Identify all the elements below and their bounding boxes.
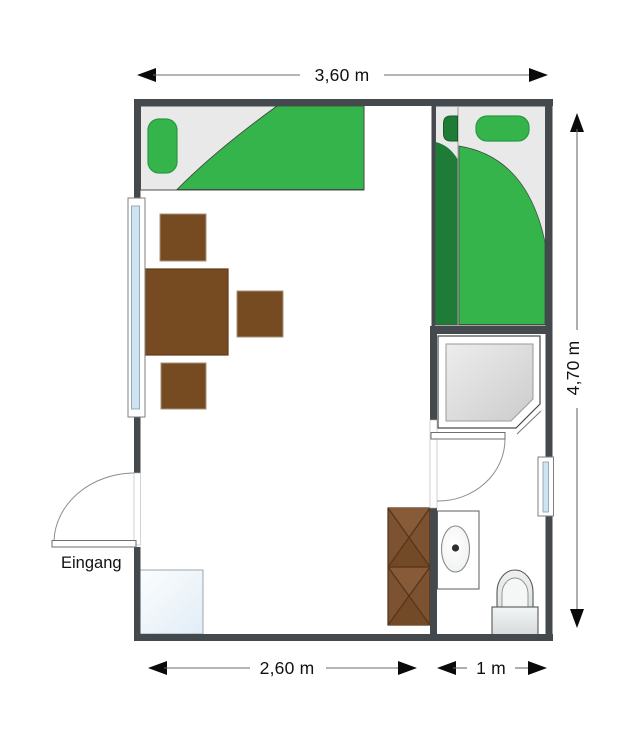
wall-top: [134, 99, 553, 106]
bathroom-door: [430, 420, 505, 508]
sink-drain: [452, 544, 459, 551]
window-glass: [132, 206, 140, 409]
window-left: [128, 198, 145, 417]
wall-left-upper: [134, 99, 141, 200]
wall-bath-lower: [430, 508, 437, 634]
door-swing-arc: [54, 473, 134, 541]
bed-pillow-dark: [444, 116, 458, 141]
shower: [438, 336, 541, 434]
window-glass: [543, 462, 549, 512]
arrow-right-icon: [529, 68, 548, 82]
sink: [438, 511, 480, 589]
shower-floor: [446, 344, 533, 421]
dimension-top-label: 3,60 m: [315, 65, 370, 85]
wall-bottom: [134, 634, 553, 641]
wall-left-lower: [134, 547, 141, 641]
arrow-right-icon: [398, 661, 417, 675]
dimension-bottom-main: 2,60 m: [148, 658, 417, 678]
wall-under-bed: [430, 326, 546, 334]
bed-blanket-dark: [436, 142, 458, 325]
arrow-down-icon: [570, 609, 584, 628]
door-opening: [134, 473, 141, 545]
entrance-label: Eingang: [61, 554, 122, 572]
chair-bottom: [161, 363, 206, 409]
door-leaf: [52, 541, 136, 548]
toilet-bowl-inner: [502, 578, 528, 608]
wardrobe: [388, 508, 430, 625]
dining-set: [143, 214, 283, 409]
arrow-right-icon: [528, 661, 547, 675]
toilet: [492, 570, 538, 635]
wall-left-mid: [134, 415, 141, 473]
wall-right: [546, 99, 553, 641]
entrance-door: [52, 473, 141, 547]
chair-right: [237, 291, 283, 337]
dimension-top: 3,60 m: [137, 65, 548, 85]
wall-bath-upper: [430, 334, 437, 420]
dimension-bottom-bath: 1 m: [437, 658, 547, 678]
dimension-right: 4,70 m: [563, 113, 584, 628]
dimension-bottom-main-label: 2,60 m: [260, 658, 315, 678]
bed-single-left: [141, 106, 365, 190]
dimension-bottom-bath-label: 1 m: [476, 658, 506, 678]
bed-single-right: [436, 106, 546, 325]
wall-bed-nook-partition: [432, 106, 436, 326]
cabinet: [140, 570, 203, 634]
door-swing-arc: [437, 439, 505, 501]
dining-table: [143, 269, 228, 355]
bed-pillow: [148, 119, 177, 173]
bed-pillow: [476, 116, 529, 141]
chair-top: [160, 214, 206, 261]
window-right: [538, 457, 554, 516]
toilet-tank: [492, 607, 538, 635]
floor-plan: Eingang 3,60 m 4,70 m 2,60 m 1 m: [0, 0, 640, 737]
dimension-right-label: 4,70 m: [563, 341, 583, 396]
door-leaf: [431, 433, 505, 440]
